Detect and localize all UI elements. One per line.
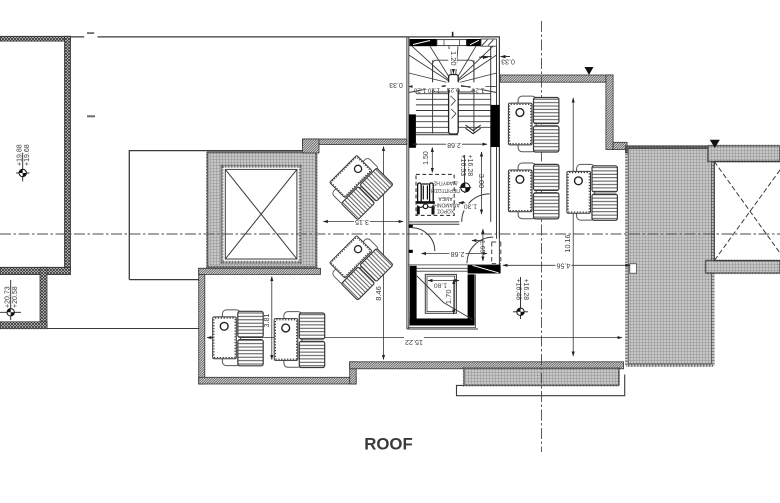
- svg-text:+20.73: +20.73: [5, 286, 12, 308]
- svg-text:2.68: 2.68: [451, 250, 465, 257]
- svg-text:+19.88: +19.88: [17, 144, 24, 166]
- svg-text:8.46: 8.46: [374, 286, 383, 301]
- svg-text:1.70: 1.70: [444, 289, 453, 304]
- svg-text:2.68: 2.68: [447, 141, 461, 148]
- svg-text:+16.28: +16.28: [522, 279, 529, 301]
- svg-text:1.80: 1.80: [434, 282, 447, 289]
- svg-text:+20.58: +20.58: [12, 286, 19, 308]
- svg-text:ΑΜΕΑ: ΑΜΕΑ: [438, 195, 453, 201]
- svg-text:1.50: 1.50: [423, 151, 430, 165]
- svg-text:0.33: 0.33: [389, 81, 403, 88]
- svg-text:0.25: 0.25: [446, 86, 459, 93]
- svg-text:ROOF: ROOF: [364, 434, 412, 453]
- svg-text:10.16: 10.16: [563, 235, 572, 253]
- svg-text:0.33: 0.33: [501, 58, 515, 65]
- svg-text:3.00: 3.00: [477, 174, 486, 189]
- svg-text:ΠΕΡΙΠΤΩΣΗ: ΠΕΡΙΠΤΩΣΗ: [431, 187, 460, 193]
- svg-text:+16.28: +16.28: [466, 155, 473, 177]
- svg-text:1.65: 1.65: [478, 240, 485, 253]
- svg-text:+16.53: +16.53: [459, 155, 466, 177]
- svg-text:+19.68: +19.68: [24, 144, 31, 166]
- svg-text:+16.48: +16.48: [515, 279, 522, 301]
- svg-text:1.20: 1.20: [471, 87, 484, 94]
- svg-text:ΔΙΑΦΥΓΗΣ: ΔΙΑΦΥΓΗΣ: [433, 180, 458, 186]
- svg-text:15.22: 15.22: [405, 338, 423, 347]
- svg-text:4.56: 4.56: [557, 262, 571, 271]
- svg-text:1.30: 1.30: [464, 203, 477, 210]
- svg-text:1.20: 1.20: [449, 51, 458, 66]
- svg-text:1.20 1.20: 1.20 1.20: [413, 87, 440, 94]
- svg-text:ΑΝΑΜΟΝΗΣ: ΑΝΑΜΟΝΗΣ: [431, 201, 460, 207]
- svg-text:ΧΩΡΟΣ: ΧΩΡΟΣ: [437, 207, 454, 213]
